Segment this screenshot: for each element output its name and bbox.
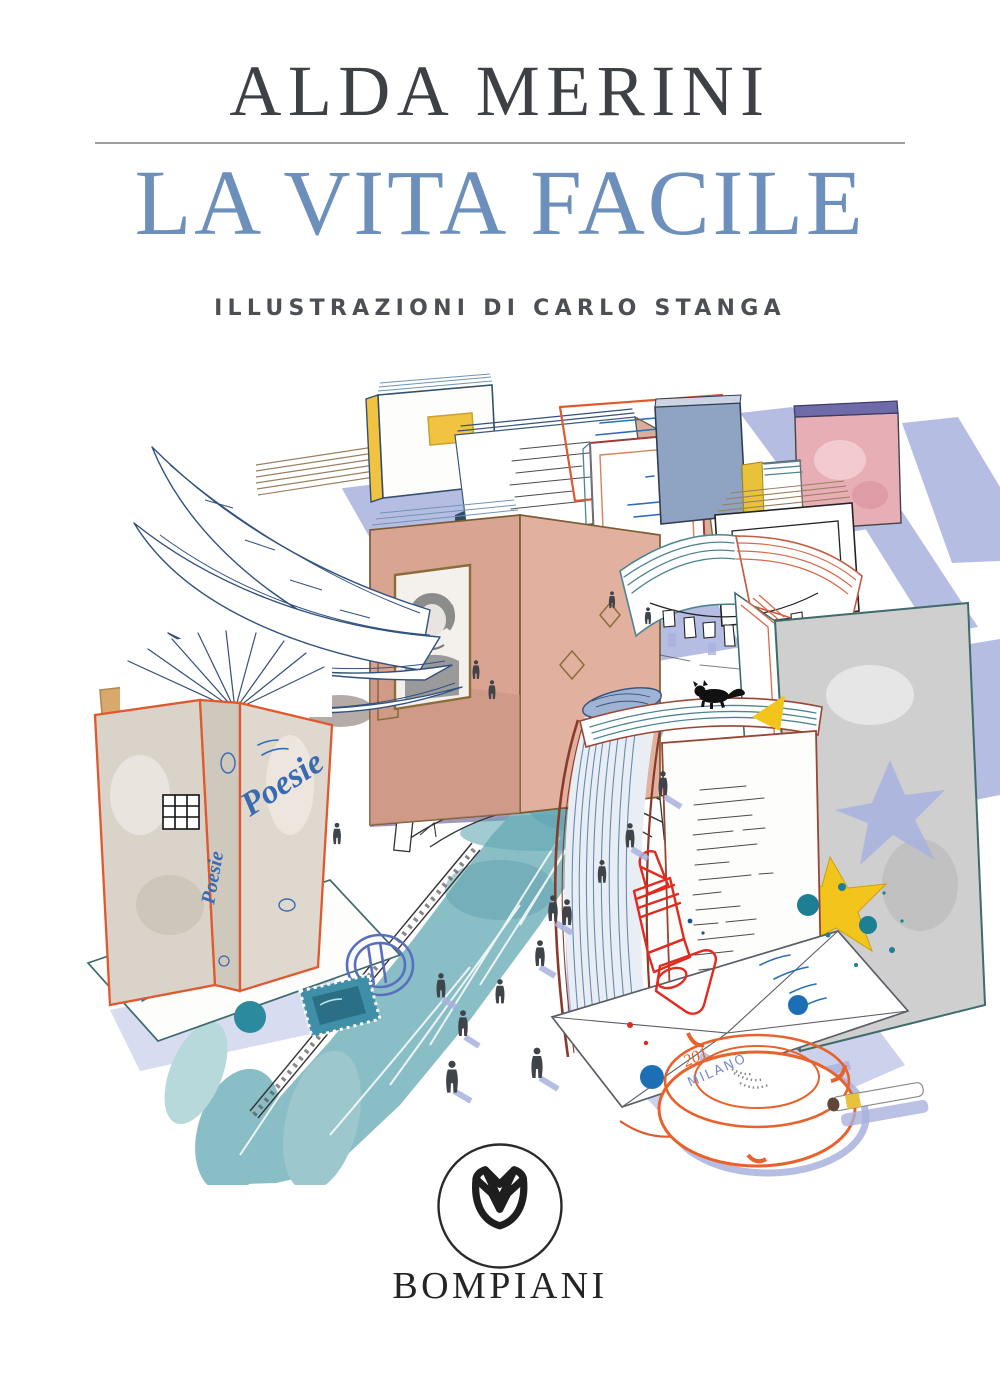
- cover-illustration: Poesie Poesie: [0, 365, 1000, 1185]
- book-title: LA VITA FACILE: [0, 150, 1000, 257]
- divider-rule: [95, 142, 905, 144]
- bompiani-logo-icon: [436, 1142, 564, 1270]
- book-cover: ALDA MERINI LA VITA FACILE ILLUSTRAZIONI…: [0, 0, 1000, 1380]
- flower-mark: [476, 1170, 524, 1226]
- author-name: ALDA MERINI: [0, 50, 1000, 133]
- teal-ink-dot: [234, 1001, 266, 1033]
- illustrator-credit: ILLUSTRAZIONI DI CARLO STANGA: [0, 296, 1000, 321]
- window-grid-ornament: [163, 795, 199, 829]
- publisher-name: BOMPIANI: [0, 1264, 1000, 1308]
- blue-gray-book: [655, 395, 746, 524]
- poesie-book: Poesie Poesie: [95, 631, 332, 1005]
